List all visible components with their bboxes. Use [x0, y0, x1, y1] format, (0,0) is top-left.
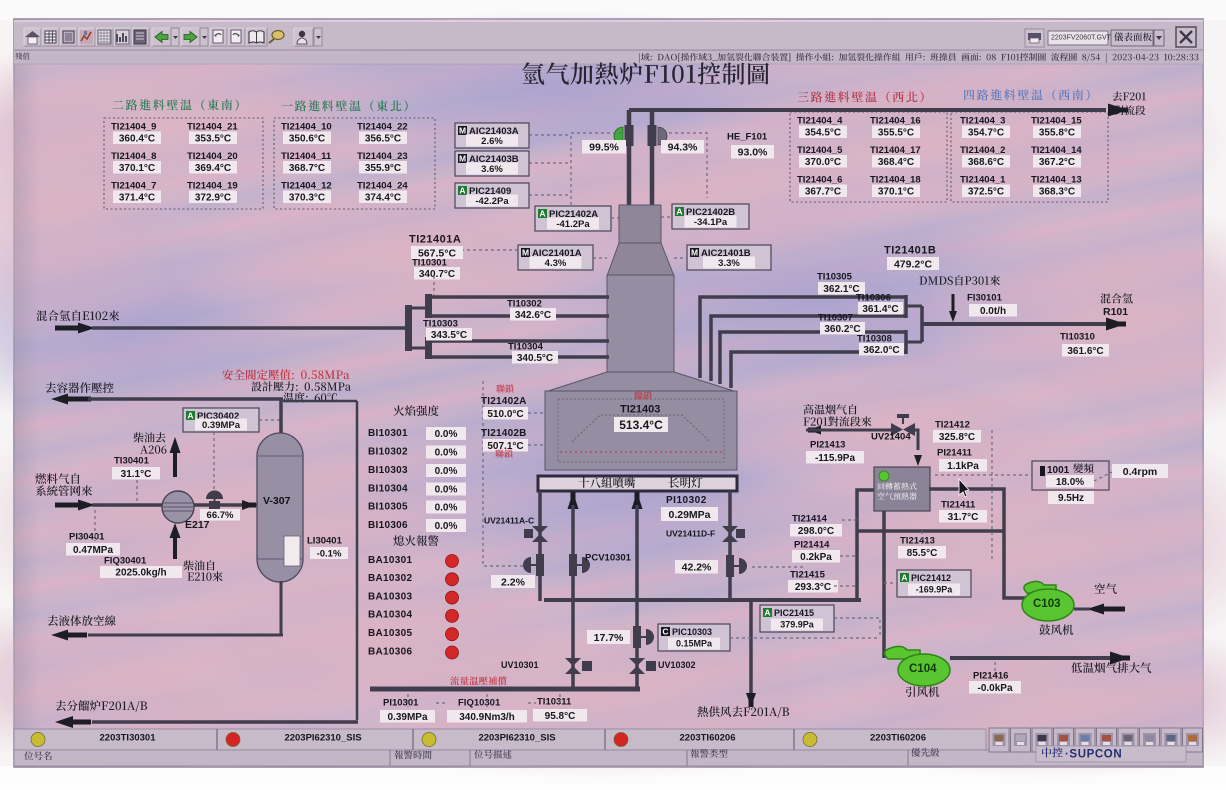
svg-text:BA10305: BA10305 — [368, 628, 412, 639]
svg-text:293.3°C: 293.3°C — [795, 582, 831, 593]
svg-text:340.9Nm3/h: 340.9Nm3/h — [459, 712, 515, 723]
svg-text:C104: C104 — [909, 663, 937, 675]
svg-text:18.0%: 18.0% — [1056, 477, 1084, 488]
svg-text:513.4°C: 513.4°C — [619, 418, 663, 432]
svg-text:TI21401B: TI21401B — [884, 245, 936, 257]
svg-text:BA10306: BA10306 — [368, 646, 412, 657]
svg-text:355.9°C: 355.9°C — [365, 163, 401, 174]
svg-text:2203TI60206: 2203TI60206 — [680, 732, 736, 743]
svg-text:TI10302: TI10302 — [507, 298, 542, 309]
svg-text:360.2°C: 360.2°C — [824, 324, 860, 335]
svg-text:-42.2Pa: -42.2Pa — [475, 196, 509, 207]
svg-text:356.5°C: 356.5°C — [365, 133, 401, 144]
svg-text:PIC10303: PIC10303 — [672, 627, 712, 637]
svg-text:UV21411D-F: UV21411D-F — [666, 529, 715, 539]
svg-text:FI30101: FI30101 — [967, 292, 1003, 303]
svg-text:2203TI30301: 2203TI30301 — [100, 732, 157, 743]
svg-text:2.2%: 2.2% — [501, 576, 526, 588]
svg-text:TI21404_9: TI21404_9 — [111, 121, 156, 132]
svg-text:0.4rpm: 0.4rpm — [1123, 466, 1157, 478]
svg-text:HE_F101: HE_F101 — [727, 131, 768, 142]
svg-text:370.1°C: 370.1°C — [119, 163, 155, 174]
svg-text:TI21401A: TI21401A — [409, 234, 461, 246]
svg-text:BI10303: BI10303 — [368, 465, 408, 476]
svg-text:UV21404: UV21404 — [871, 431, 911, 442]
svg-text:TI21404_4: TI21404_4 — [797, 115, 843, 126]
svg-text:0.47MPa: 0.47MPa — [73, 545, 113, 556]
svg-text:0.0%: 0.0% — [435, 448, 458, 459]
svg-text:0.39MPa: 0.39MPa — [202, 420, 241, 431]
svg-text:362.0°C: 362.0°C — [863, 345, 899, 356]
svg-text:TI21404_20: TI21404_20 — [187, 151, 238, 162]
svg-text:0.2kPa: 0.2kPa — [800, 552, 832, 563]
svg-text:TI21404_3: TI21404_3 — [960, 115, 1005, 126]
svg-text:TI21412: TI21412 — [935, 419, 970, 430]
svg-text:-0.1%: -0.1% — [317, 548, 342, 559]
svg-text:PIC21412: PIC21412 — [911, 573, 951, 583]
svg-text:99.5%: 99.5% — [589, 142, 619, 154]
svg-text:M: M — [691, 248, 698, 258]
svg-text:TI21404_17: TI21404_17 — [870, 145, 921, 156]
svg-text:369.4°C: 369.4°C — [195, 163, 231, 174]
svg-text:A: A — [539, 209, 545, 219]
svg-text:342.6°C: 342.6°C — [515, 310, 551, 321]
svg-text:-169.9Pa: -169.9Pa — [916, 585, 954, 595]
svg-text:PCV10301: PCV10301 — [585, 552, 632, 563]
svg-text:368.4°C: 368.4°C — [878, 157, 914, 168]
svg-text:66.7%: 66.7% — [207, 510, 234, 521]
svg-text:355.8°C: 355.8°C — [1039, 127, 1075, 138]
svg-text:TI21404_21: TI21404_21 — [187, 121, 238, 132]
svg-text:TI21414: TI21414 — [792, 513, 828, 524]
svg-text:A: A — [764, 608, 770, 618]
svg-text:368.7°C: 368.7°C — [289, 163, 325, 174]
svg-text:TI21404_2: TI21404_2 — [960, 145, 1005, 156]
svg-text:379.9Pa: 379.9Pa — [780, 620, 815, 630]
svg-text:2.6%: 2.6% — [481, 136, 503, 147]
svg-text:TI21413: TI21413 — [900, 535, 935, 546]
svg-text:361.6°C: 361.6°C — [1067, 346, 1103, 357]
svg-text:PI10302: PI10302 — [666, 495, 707, 506]
svg-text:371.4°C: 371.4°C — [119, 192, 155, 203]
svg-text:367.2°C: 367.2°C — [1039, 157, 1075, 168]
svg-text:BI10306: BI10306 — [368, 520, 408, 531]
svg-text:368.3°C: 368.3°C — [1039, 186, 1075, 197]
svg-text:PI21414: PI21414 — [794, 539, 830, 550]
svg-text:TI10307: TI10307 — [818, 312, 853, 323]
svg-text:TI10305: TI10305 — [817, 271, 853, 282]
svg-text:362.1°C: 362.1°C — [823, 284, 859, 295]
svg-text:PI10301: PI10301 — [383, 697, 419, 708]
svg-text:TI21404_16: TI21404_16 — [870, 115, 921, 126]
svg-text:360.4°C: 360.4°C — [119, 133, 155, 144]
svg-text:M: M — [459, 154, 466, 164]
svg-text:370.3°C: 370.3°C — [289, 192, 325, 203]
svg-text:85.5°C: 85.5°C — [907, 548, 938, 559]
svg-text:0.15MPa: 0.15MPa — [676, 639, 713, 649]
svg-text:UV10301: UV10301 — [501, 660, 539, 670]
svg-text:BI10304: BI10304 — [368, 483, 408, 494]
svg-text:479.2°C: 479.2°C — [894, 258, 932, 270]
svg-text:TI21404_10: TI21404_10 — [281, 121, 332, 132]
svg-text:BI10302: BI10302 — [368, 446, 408, 457]
svg-text:2203TI60206: 2203TI60206 — [870, 732, 926, 743]
svg-text:42.2%: 42.2% — [682, 562, 712, 574]
svg-text:2025.0kg/h: 2025.0kg/h — [115, 568, 166, 579]
svg-text:-41.2Pa: -41.2Pa — [556, 219, 590, 230]
svg-text:298.0°C: 298.0°C — [798, 526, 834, 537]
svg-text:95.8°C: 95.8°C — [545, 711, 576, 722]
svg-text:TI21402A: TI21402A — [481, 396, 527, 407]
svg-text:354.7°C: 354.7°C — [968, 127, 1004, 138]
svg-text:372.9°C: 372.9°C — [195, 192, 231, 203]
svg-text:343.5°C: 343.5°C — [431, 330, 467, 341]
svg-text:R101: R101 — [1103, 306, 1128, 318]
svg-text:31.7°C: 31.7°C — [948, 512, 979, 523]
svg-text:TI10311: TI10311 — [537, 696, 572, 707]
svg-text:PI21416: PI21416 — [973, 670, 1008, 681]
svg-text:TI21403: TI21403 — [620, 404, 660, 416]
svg-text:UV21411A-C: UV21411A-C — [484, 516, 534, 526]
svg-text:TI21404_22: TI21404_22 — [357, 121, 408, 132]
svg-text:9.5Hz: 9.5Hz — [1058, 493, 1084, 504]
svg-text:0.0%: 0.0% — [435, 485, 458, 496]
svg-text:340.5°C: 340.5°C — [517, 353, 553, 364]
svg-text:TI21411: TI21411 — [941, 499, 976, 510]
svg-text:0.0%: 0.0% — [435, 521, 458, 532]
svg-text:370.0°C: 370.0°C — [805, 157, 841, 168]
svg-text:370.1°C: 370.1°C — [878, 186, 914, 197]
svg-text:C103: C103 — [1033, 598, 1061, 610]
svg-text:BI10301: BI10301 — [368, 428, 408, 439]
svg-text:0.0%: 0.0% — [435, 503, 458, 514]
svg-text:1.1kPa: 1.1kPa — [947, 461, 979, 472]
svg-text:UV10302: UV10302 — [658, 660, 696, 670]
svg-text:350.6°C: 350.6°C — [289, 133, 325, 144]
svg-text:93.0%: 93.0% — [738, 147, 768, 159]
svg-text:TI10301: TI10301 — [412, 257, 448, 268]
svg-text:A: A — [187, 411, 193, 421]
svg-text:340.7°C: 340.7°C — [419, 269, 455, 280]
svg-text:94.3%: 94.3% — [668, 142, 698, 154]
svg-text:353.5°C: 353.5°C — [195, 133, 231, 144]
svg-text:2203PI62310_SIS: 2203PI62310_SIS — [478, 732, 555, 743]
svg-text:TI30401: TI30401 — [114, 455, 150, 466]
svg-text:TI21404_24: TI21404_24 — [357, 180, 408, 191]
svg-text:TI10310: TI10310 — [1060, 331, 1095, 342]
svg-text:2203FV2060T.GVT: 2203FV2060T.GVT — [1051, 34, 1112, 41]
svg-text:TI21404_18: TI21404_18 — [870, 174, 921, 185]
svg-text:374.4°C: 374.4°C — [365, 192, 401, 203]
svg-text:0.0t/h: 0.0t/h — [980, 306, 1006, 317]
svg-text:PI30401: PI30401 — [69, 531, 105, 542]
svg-text:FIQ30401: FIQ30401 — [104, 555, 147, 566]
svg-text:C: C — [662, 627, 668, 637]
svg-text:0.29MPa: 0.29MPa — [668, 509, 710, 521]
svg-text:FIQ10301: FIQ10301 — [458, 697, 501, 708]
svg-text:V-307: V-307 — [263, 495, 291, 507]
svg-text:TI21402B: TI21402B — [481, 428, 527, 439]
svg-text:BA10303: BA10303 — [368, 591, 412, 602]
svg-text:372.5°C: 372.5°C — [968, 186, 1004, 197]
svg-text:A: A — [676, 207, 682, 217]
svg-text:TI21404_7: TI21404_7 — [111, 180, 156, 191]
svg-text:PI21411: PI21411 — [937, 447, 973, 458]
svg-text:-0.0kPa: -0.0kPa — [977, 683, 1012, 694]
svg-text:2203PI62310_SIS: 2203PI62310_SIS — [284, 732, 361, 743]
svg-text:TI21404_1: TI21404_1 — [960, 174, 1006, 185]
svg-text:355.5°C: 355.5°C — [878, 127, 914, 138]
svg-text:TI21404_15: TI21404_15 — [1031, 115, 1082, 126]
svg-text:354.5°C: 354.5°C — [805, 127, 841, 138]
svg-text:TI21404_23: TI21404_23 — [357, 151, 408, 162]
svg-text:TI21404_5: TI21404_5 — [797, 145, 843, 156]
svg-text:TI21404_14: TI21404_14 — [1031, 145, 1082, 156]
svg-text:368.6°C: 368.6°C — [968, 157, 1004, 168]
svg-text:LI30401: LI30401 — [307, 535, 343, 546]
svg-text:367.7°C: 367.7°C — [805, 186, 841, 197]
svg-text:0.39MPa: 0.39MPa — [387, 712, 427, 723]
svg-text:510.0°C: 510.0°C — [487, 409, 523, 420]
svg-text:0.0%: 0.0% — [435, 429, 458, 440]
svg-text:BA10302: BA10302 — [368, 573, 412, 584]
svg-text:3.3%: 3.3% — [718, 258, 740, 269]
svg-text:TI21415: TI21415 — [790, 569, 826, 580]
svg-text:4.3%: 4.3% — [545, 258, 567, 269]
svg-text:TI21404_11: TI21404_11 — [281, 151, 332, 162]
svg-text:0.0%: 0.0% — [435, 466, 458, 477]
svg-text:TI21404_13: TI21404_13 — [1031, 174, 1082, 185]
svg-text:1001: 1001 — [1047, 465, 1070, 476]
svg-text:361.4°C: 361.4°C — [862, 304, 898, 315]
svg-text:31.1°C: 31.1°C — [121, 469, 152, 480]
svg-text:A: A — [459, 186, 465, 196]
svg-text:3.6%: 3.6% — [481, 164, 503, 175]
svg-text:TI10306: TI10306 — [856, 292, 891, 303]
svg-text:·SUPCON: ·SUPCON — [1065, 748, 1122, 760]
svg-text:TI10308: TI10308 — [857, 333, 892, 344]
svg-text:BI10305: BI10305 — [368, 501, 408, 512]
svg-text:-115.9Pa: -115.9Pa — [815, 453, 855, 464]
svg-text:TI10304: TI10304 — [508, 341, 544, 352]
svg-text:TI21404_8: TI21404_8 — [111, 151, 156, 162]
svg-text:-34.1Pa: -34.1Pa — [694, 217, 728, 228]
svg-text:TI10303: TI10303 — [423, 318, 458, 329]
svg-text:M: M — [522, 248, 529, 258]
svg-text:A: A — [901, 573, 907, 583]
svg-text:TI21404_19: TI21404_19 — [187, 180, 238, 191]
svg-text:325.8°C: 325.8°C — [939, 432, 975, 443]
svg-text:BA10301: BA10301 — [368, 555, 412, 566]
svg-text:17.7%: 17.7% — [594, 632, 624, 644]
svg-text:TI21404_12: TI21404_12 — [281, 180, 332, 191]
svg-text:TI21404_6: TI21404_6 — [797, 174, 842, 185]
svg-text:PIC21415: PIC21415 — [774, 608, 814, 618]
svg-text:PI21413: PI21413 — [810, 439, 845, 450]
svg-text:BA10304: BA10304 — [368, 610, 412, 621]
svg-text:M: M — [459, 126, 466, 136]
